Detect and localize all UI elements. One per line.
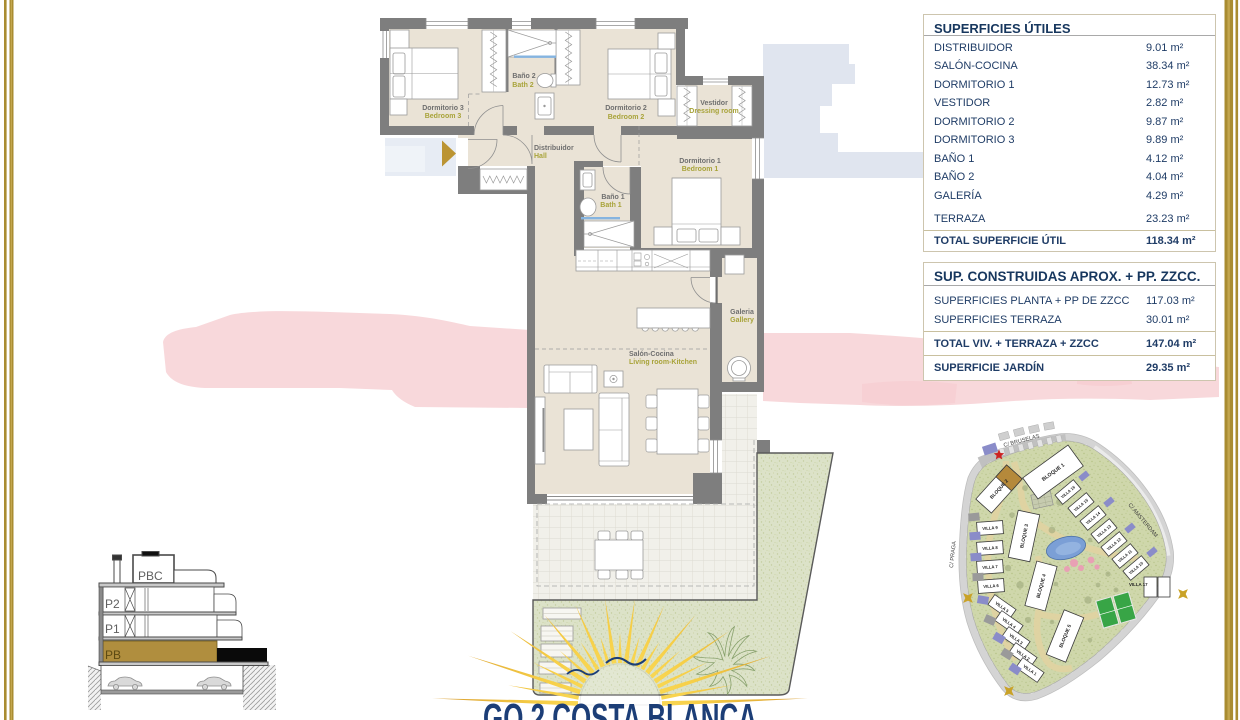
svg-text:Hall: Hall (534, 153, 547, 160)
svg-text:Bath 2: Bath 2 (512, 82, 534, 89)
svg-text:P2: P2 (105, 597, 120, 611)
svg-text:Gallery: Gallery (730, 317, 754, 324)
svg-text:Dressing room: Dressing room (689, 108, 738, 115)
svg-text:Bedroom 3: Bedroom 3 (425, 113, 462, 120)
svg-text:Baño 2: Baño 2 (512, 73, 535, 80)
svg-text:Galeria: Galeria (730, 309, 754, 316)
svg-text:Salón-Cocina: Salón-Cocina (629, 351, 674, 358)
svg-text:C/ PRAGA: C/ PRAGA (949, 541, 958, 568)
svg-text:PB: PB (105, 648, 121, 662)
svg-text:Bath 1: Bath 1 (600, 202, 622, 209)
svg-text:VILLA 17: VILLA 17 (1129, 582, 1148, 587)
svg-text:Dormitorio 1: Dormitorio 1 (679, 158, 721, 165)
svg-text:Baño 1: Baño 1 (601, 194, 624, 201)
svg-text:Dormitorio 3: Dormitorio 3 (422, 105, 464, 112)
svg-text:Dormitorio 2: Dormitorio 2 (605, 105, 647, 112)
svg-text:Bedroom 1: Bedroom 1 (682, 166, 719, 173)
svg-text:Living room-Kitchen: Living room-Kitchen (629, 359, 697, 366)
svg-text:GO 2 COSTA BLANCA: GO 2 COSTA BLANCA (483, 697, 757, 720)
svg-text:P1: P1 (105, 622, 120, 636)
svg-text:PBC: PBC (138, 569, 163, 583)
svg-text:Distribuidor: Distribuidor (534, 145, 574, 152)
svg-text:Vestidor: Vestidor (700, 100, 728, 107)
svg-text:Bedroom 2: Bedroom 2 (608, 114, 645, 121)
